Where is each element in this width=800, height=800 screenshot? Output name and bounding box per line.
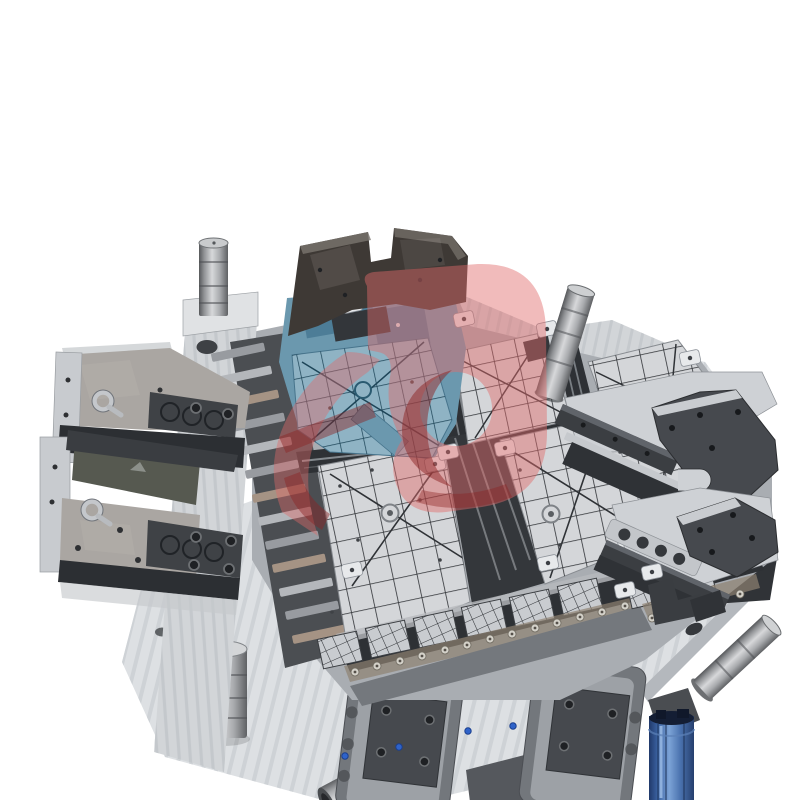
locking-notch [678,469,711,491]
photo-stage [0,0,800,800]
mould-photo [0,0,800,800]
blue-spring-cylinder [649,709,694,800]
wall-hole [197,340,218,354]
guide-pin-top-left [199,238,228,316]
boss-blue [355,382,371,398]
